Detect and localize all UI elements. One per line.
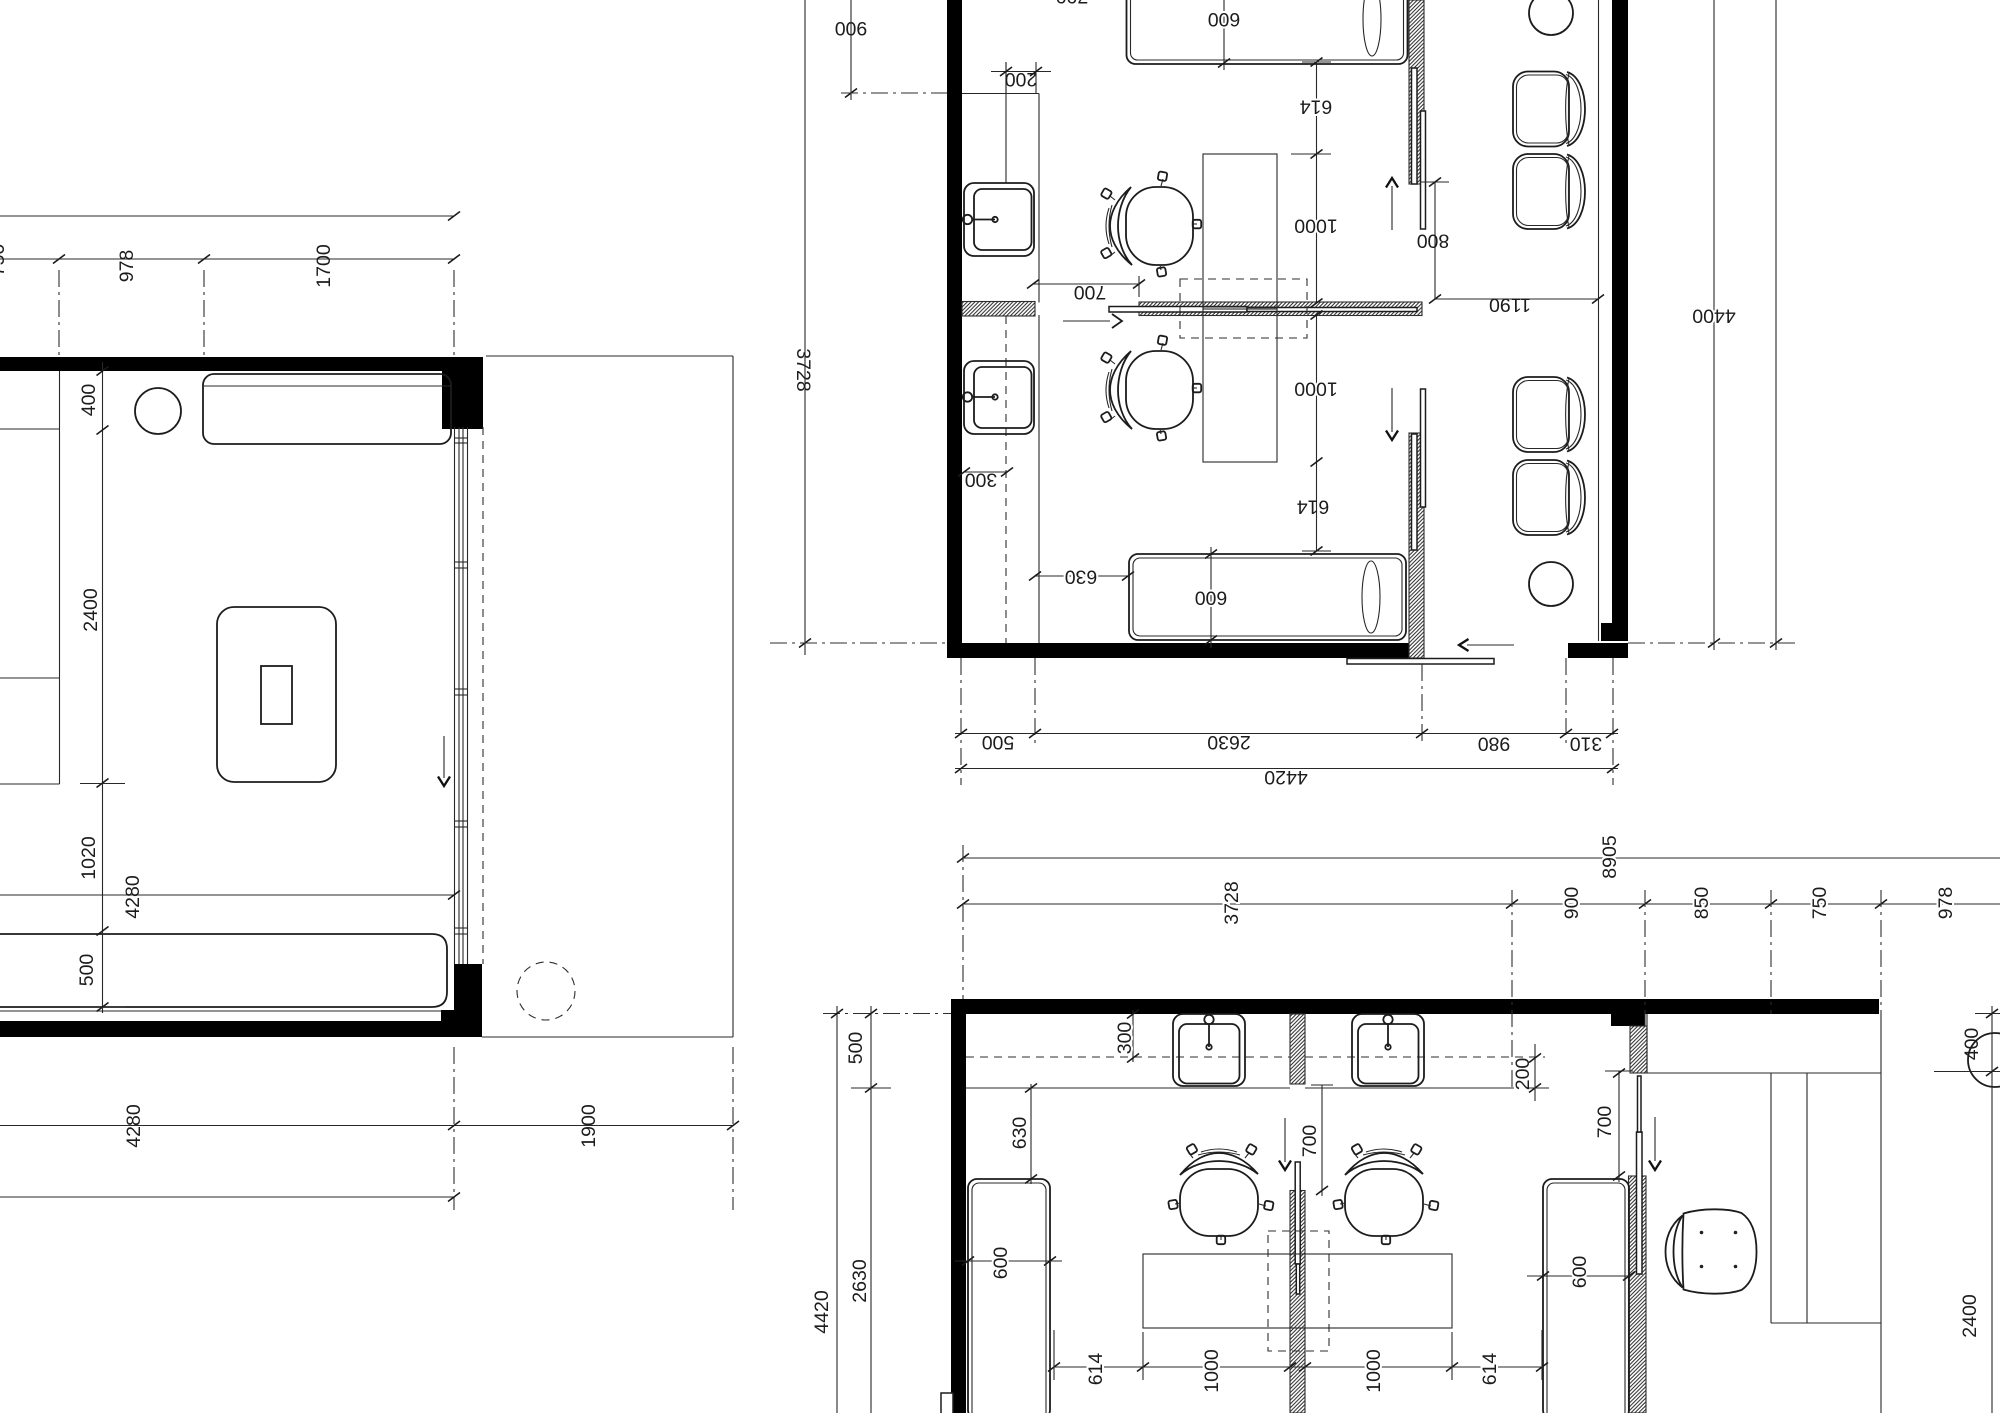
svg-text:1700: 1700 [313, 244, 335, 288]
svg-text:614: 614 [1085, 1353, 1107, 1386]
svg-text:300: 300 [1114, 1022, 1136, 1055]
svg-text:310: 310 [1570, 733, 1603, 755]
svg-text:1190: 1190 [1489, 294, 1531, 316]
svg-text:8905: 8905 [1599, 835, 1621, 879]
svg-text:2630: 2630 [1207, 731, 1251, 753]
svg-text:2400: 2400 [1959, 1294, 1981, 1338]
svg-text:978: 978 [1935, 887, 1957, 920]
svg-text:200: 200 [1512, 1058, 1534, 1091]
svg-text:4280: 4280 [122, 875, 144, 919]
svg-text:750: 750 [0, 244, 9, 277]
svg-text:850: 850 [1691, 887, 1713, 920]
svg-text:200: 200 [1005, 68, 1038, 90]
svg-text:400: 400 [78, 384, 100, 417]
svg-text:500: 500 [982, 731, 1015, 753]
svg-text:700: 700 [1056, 0, 1089, 7]
svg-text:614: 614 [1479, 1353, 1501, 1386]
svg-text:600: 600 [1208, 8, 1241, 30]
svg-text:900: 900 [835, 17, 868, 39]
svg-text:3728: 3728 [792, 348, 814, 391]
svg-text:600: 600 [1569, 1256, 1591, 1289]
svg-text:1000: 1000 [1363, 1349, 1385, 1393]
svg-text:700: 700 [1074, 281, 1107, 303]
svg-text:900: 900 [1561, 887, 1583, 920]
svg-text:1900: 1900 [578, 1104, 600, 1148]
svg-text:630: 630 [1009, 1117, 1031, 1150]
svg-text:700: 700 [1594, 1106, 1616, 1139]
svg-text:614: 614 [1297, 496, 1330, 518]
svg-text:500: 500 [845, 1032, 867, 1065]
svg-text:980: 980 [1478, 733, 1511, 755]
svg-text:3728: 3728 [1221, 881, 1243, 924]
svg-text:4420: 4420 [811, 1290, 833, 1334]
svg-text:600: 600 [990, 1247, 1012, 1280]
svg-text:1000: 1000 [1201, 1349, 1223, 1393]
svg-text:978: 978 [116, 250, 138, 283]
svg-text:750: 750 [1809, 887, 1831, 920]
svg-text:400: 400 [1961, 1028, 1983, 1061]
svg-text:600: 600 [1195, 587, 1228, 609]
svg-text:1000: 1000 [1294, 215, 1338, 237]
svg-text:500: 500 [76, 954, 98, 987]
svg-text:700: 700 [1299, 1125, 1321, 1158]
svg-text:1000: 1000 [1294, 378, 1338, 400]
svg-text:300: 300 [965, 469, 998, 491]
svg-text:800: 800 [1417, 230, 1450, 252]
svg-text:2400: 2400 [80, 588, 102, 632]
svg-text:1020: 1020 [78, 836, 100, 880]
svg-text:4280: 4280 [123, 1104, 145, 1148]
svg-text:4400: 4400 [1692, 305, 1736, 327]
svg-text:630: 630 [1065, 566, 1098, 588]
svg-text:614: 614 [1300, 96, 1333, 118]
svg-text:4420: 4420 [1264, 766, 1308, 788]
svg-text:2630: 2630 [849, 1259, 871, 1303]
